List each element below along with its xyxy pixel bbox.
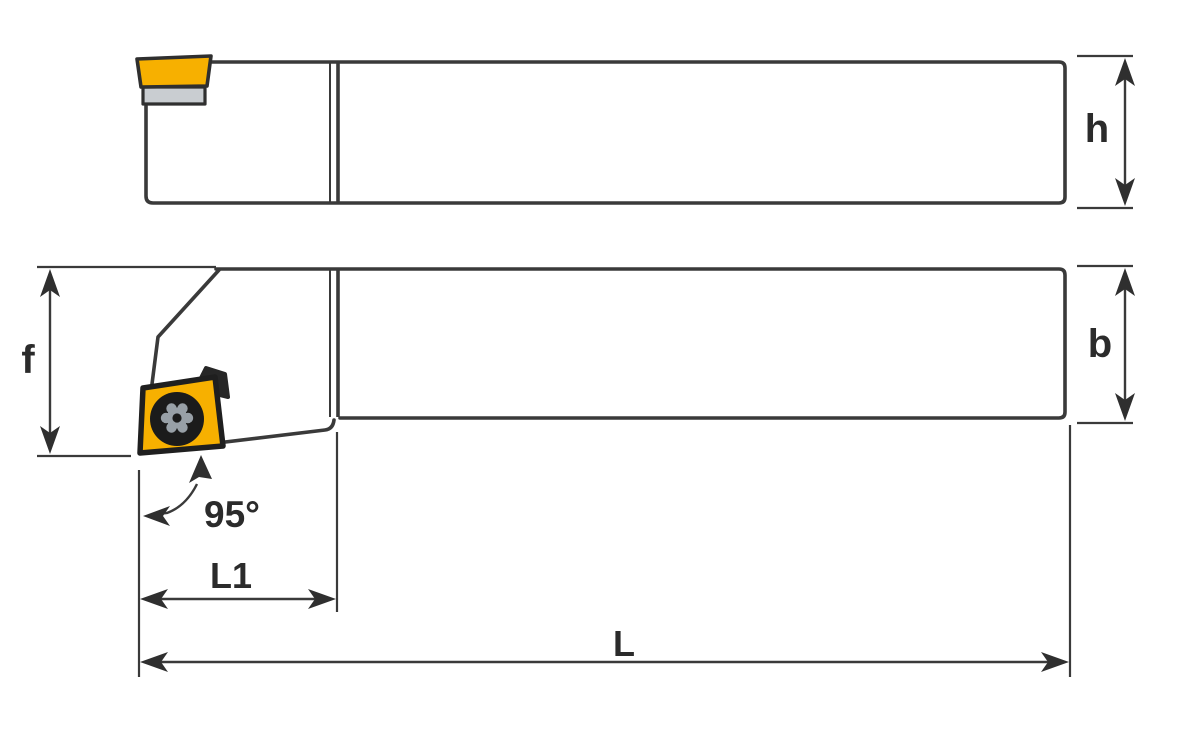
- insert-screw-icon: [150, 392, 204, 446]
- dim-f-label: f: [21, 338, 35, 382]
- dim-l: L: [140, 425, 1070, 677]
- angle-arrow-up: [189, 455, 212, 483]
- dim-b: b: [1077, 266, 1135, 423]
- angle-label: 95°: [204, 494, 260, 535]
- tool-holder-diagram-svg: h: [0, 0, 1198, 732]
- side-view-insert: [137, 56, 211, 87]
- dim-l-label: L: [613, 623, 635, 664]
- torx-center-hole: [172, 413, 181, 422]
- top-view-shank-outline: [216, 269, 1065, 418]
- dim-h-label: h: [1085, 107, 1109, 151]
- angle-arrow-left: [143, 506, 170, 526]
- tool-holder-drawing: h: [0, 0, 1198, 732]
- top-view: [140, 269, 1065, 453]
- dim-b-label: b: [1088, 322, 1112, 366]
- side-view: [137, 56, 1065, 203]
- angle-arc: [150, 484, 197, 515]
- dim-h: h: [1077, 56, 1135, 208]
- dim-l1: L1: [139, 432, 337, 677]
- angle-annotation: 95°: [143, 455, 260, 535]
- side-view-body-outline: [146, 62, 1065, 203]
- dim-l1-label: L1: [210, 555, 252, 596]
- side-view-shim: [143, 87, 205, 104]
